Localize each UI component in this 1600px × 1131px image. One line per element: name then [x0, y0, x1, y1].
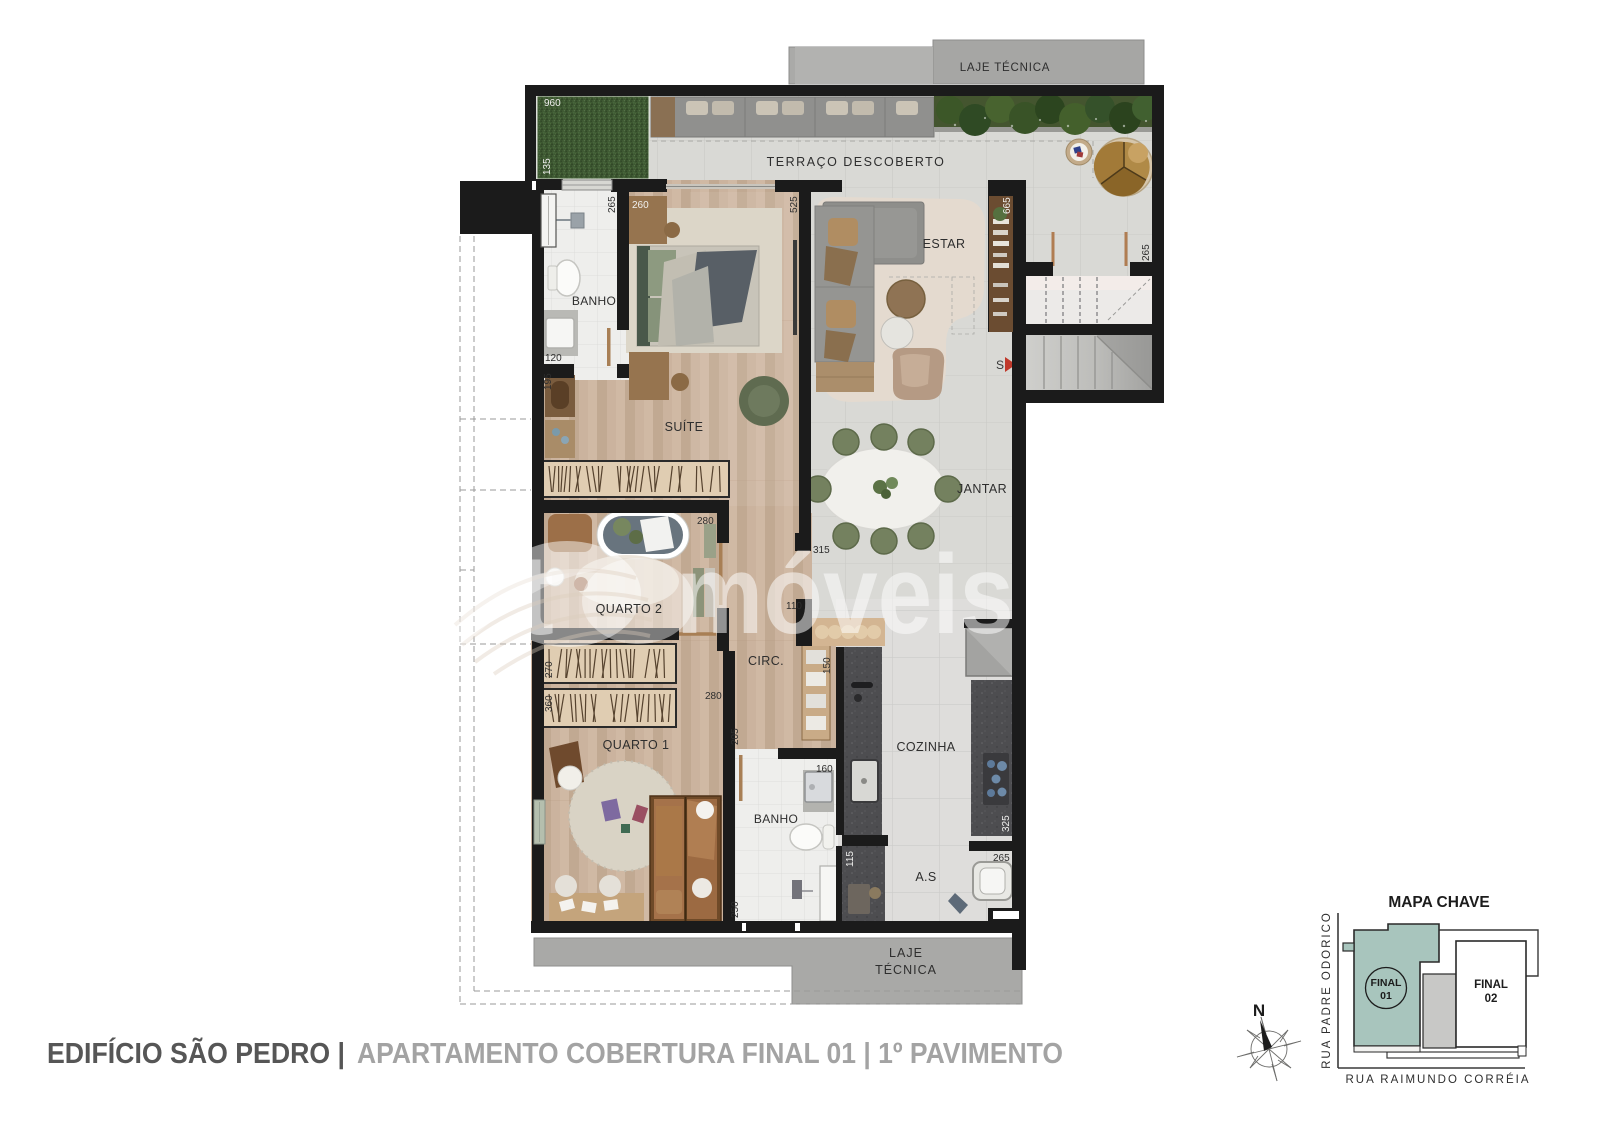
svg-text:A.S: A.S: [915, 870, 936, 884]
svg-text:160: 160: [816, 764, 833, 775]
svg-text:BANHO: BANHO: [572, 294, 616, 308]
svg-text:265: 265: [993, 853, 1010, 864]
svg-text:260: 260: [632, 200, 649, 211]
svg-text:265: 265: [1141, 244, 1152, 261]
svg-text:110: 110: [786, 601, 802, 612]
svg-text:01: 01: [1380, 990, 1392, 1002]
svg-text:135: 135: [542, 158, 553, 175]
svg-text:115: 115: [845, 851, 856, 867]
svg-text:280: 280: [697, 516, 714, 527]
svg-text:665: 665: [1002, 197, 1013, 214]
svg-text:BANHO: BANHO: [754, 812, 798, 826]
svg-text:QUARTO 2: QUARTO 2: [596, 602, 663, 616]
svg-text:150: 150: [822, 657, 833, 674]
svg-text:205: 205: [730, 728, 741, 745]
svg-text:QUARTO 1: QUARTO 1: [603, 738, 670, 752]
svg-text:LAJE TÉCNICA: LAJE TÉCNICA: [960, 61, 1051, 74]
svg-text:N: N: [1253, 1001, 1265, 1020]
svg-text:COZINHA: COZINHA: [896, 740, 955, 754]
svg-text:S: S: [996, 358, 1004, 372]
svg-text:CIRC.: CIRC.: [748, 654, 784, 668]
svg-text:02: 02: [1485, 993, 1498, 1005]
svg-text:RUA RAIMUNDO CORRÉIA: RUA RAIMUNDO CORRÉIA: [1345, 1073, 1530, 1086]
svg-text:TERRAÇO DESCOBERTO: TERRAÇO DESCOBERTO: [767, 155, 946, 169]
svg-text:EDIFÍCIO SÃO PEDRO |APARTAMENT: EDIFÍCIO SÃO PEDRO |APARTAMENTO COBERTUR…: [47, 1036, 1063, 1070]
svg-text:móveis: móveis: [676, 532, 1014, 657]
svg-text:315: 315: [813, 545, 830, 556]
svg-text:MAPA CHAVE: MAPA CHAVE: [1388, 894, 1489, 911]
svg-text:960: 960: [544, 98, 561, 109]
svg-text:RUA PADRE ODORICO: RUA PADRE ODORICO: [1321, 911, 1333, 1069]
svg-text:250: 250: [730, 901, 741, 918]
svg-text:325: 325: [1001, 815, 1012, 832]
svg-text:FINAL: FINAL: [1474, 979, 1508, 991]
svg-text:ESTAR: ESTAR: [923, 237, 966, 251]
svg-text:FINAL: FINAL: [1371, 977, 1402, 989]
svg-text:265: 265: [607, 196, 618, 213]
svg-text:120: 120: [545, 353, 562, 364]
svg-text:270: 270: [544, 661, 555, 678]
svg-text:TÉCNICA: TÉCNICA: [875, 962, 937, 977]
svg-text:LAJE: LAJE: [889, 946, 923, 960]
svg-text:JANTAR: JANTAR: [957, 482, 1007, 496]
svg-text:280: 280: [705, 691, 722, 702]
svg-text:360: 360: [544, 695, 555, 712]
svg-text:195: 195: [543, 373, 554, 390]
svg-text:SUÍTE: SUÍTE: [665, 419, 704, 434]
svg-text:525: 525: [789, 196, 800, 213]
